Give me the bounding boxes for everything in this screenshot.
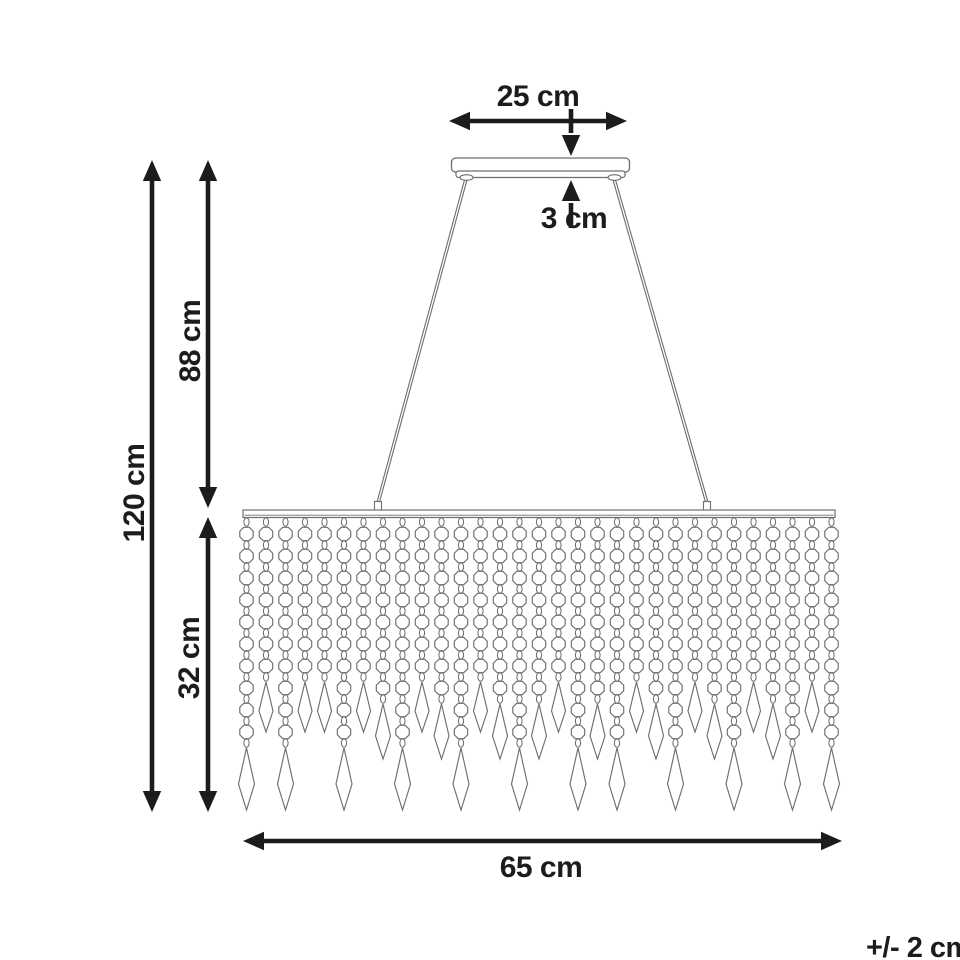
bead-strand (415, 518, 429, 732)
bead-strand (766, 518, 781, 759)
crystal-drop (259, 682, 273, 732)
crystal-drop (630, 682, 644, 732)
suspension-cable-left (375, 179, 468, 511)
bead-strand (434, 518, 449, 759)
bead-strand (512, 518, 528, 810)
bead-strand (707, 518, 722, 759)
crystal-drop (493, 704, 508, 759)
bead-strand (805, 518, 819, 732)
bead-curtain (239, 518, 840, 810)
dim-arrow-canopy-width (449, 112, 627, 130)
crystal-drop (668, 748, 684, 810)
crystal-drop (649, 704, 664, 759)
bead-strand (395, 518, 411, 810)
bead-strand (298, 518, 312, 732)
crystal-drop (688, 682, 702, 732)
bead-strand (688, 518, 702, 732)
bead-strand (278, 518, 294, 810)
bead-strand (649, 518, 664, 759)
bead-strand (726, 518, 742, 810)
dim-label-suspension-height: 88 cm (176, 300, 206, 383)
bead-strand (747, 518, 761, 732)
bead-strand (357, 518, 371, 732)
suspension-cable-right (613, 179, 711, 511)
dim-label-curtain-height: 32 cm (175, 617, 205, 700)
dim-label-canopy-width: 25 cm (497, 82, 580, 112)
crystal-drop (298, 682, 312, 732)
crystal-drop (747, 682, 761, 732)
dimension-diagram: 25 cm 3 cm 120 cm 88 cm 32 cm 65 cm +/- … (0, 0, 960, 960)
crystal-drop (552, 682, 566, 732)
cable-mount-right (608, 175, 621, 181)
frame-bar (243, 510, 835, 518)
crystal-drop (785, 748, 801, 810)
bead-strand (532, 518, 547, 759)
bead-strand (609, 518, 625, 810)
crystal-drop (434, 704, 449, 759)
crystal-drop (357, 682, 371, 732)
crystal-drop (805, 682, 819, 732)
dim-label-total-height: 120 cm (120, 444, 150, 543)
crystal-drop (726, 748, 742, 810)
bead-strand (493, 518, 508, 759)
bead-strand (552, 518, 566, 732)
bead-strand (668, 518, 684, 810)
crystal-drop (278, 748, 294, 810)
dim-label-canopy-height: 3 cm (541, 204, 607, 234)
crystal-drop (474, 682, 488, 732)
bead-strand (453, 518, 469, 810)
crystal-drop (415, 682, 429, 732)
bead-strand (239, 518, 255, 810)
crystal-drop (318, 682, 332, 732)
bead-strand (474, 518, 488, 732)
crystal-drop (336, 748, 352, 810)
bead-strand (824, 518, 840, 810)
bead-strand (259, 518, 273, 732)
bead-strand (570, 518, 586, 810)
crystal-drop (453, 748, 469, 810)
crystal-drop (707, 704, 722, 759)
crystal-drop (824, 748, 840, 810)
crystal-drop (239, 748, 255, 810)
crystal-drop (532, 704, 547, 759)
crystal-drop (395, 748, 411, 810)
crystal-drop (609, 748, 625, 810)
crystal-drop (376, 704, 391, 759)
bead-strand (376, 518, 391, 759)
bead-strand (785, 518, 801, 810)
crystal-drop (590, 704, 605, 759)
tolerance-note: +/- 2 cm (866, 934, 960, 960)
bead-strand (336, 518, 352, 810)
cable-mount-left (460, 175, 473, 181)
crystal-drop (512, 748, 528, 810)
bead-strand (630, 518, 644, 732)
dim-label-bar-width: 65 cm (500, 853, 583, 883)
crystal-drop (570, 748, 586, 810)
crystal-drop (766, 704, 781, 759)
bead-strand (590, 518, 605, 759)
dim-arrow-bar-width (243, 832, 842, 850)
ceiling-canopy (452, 158, 630, 180)
dim-arrow-canopy-top (562, 109, 580, 156)
bead-strand (318, 518, 332, 732)
